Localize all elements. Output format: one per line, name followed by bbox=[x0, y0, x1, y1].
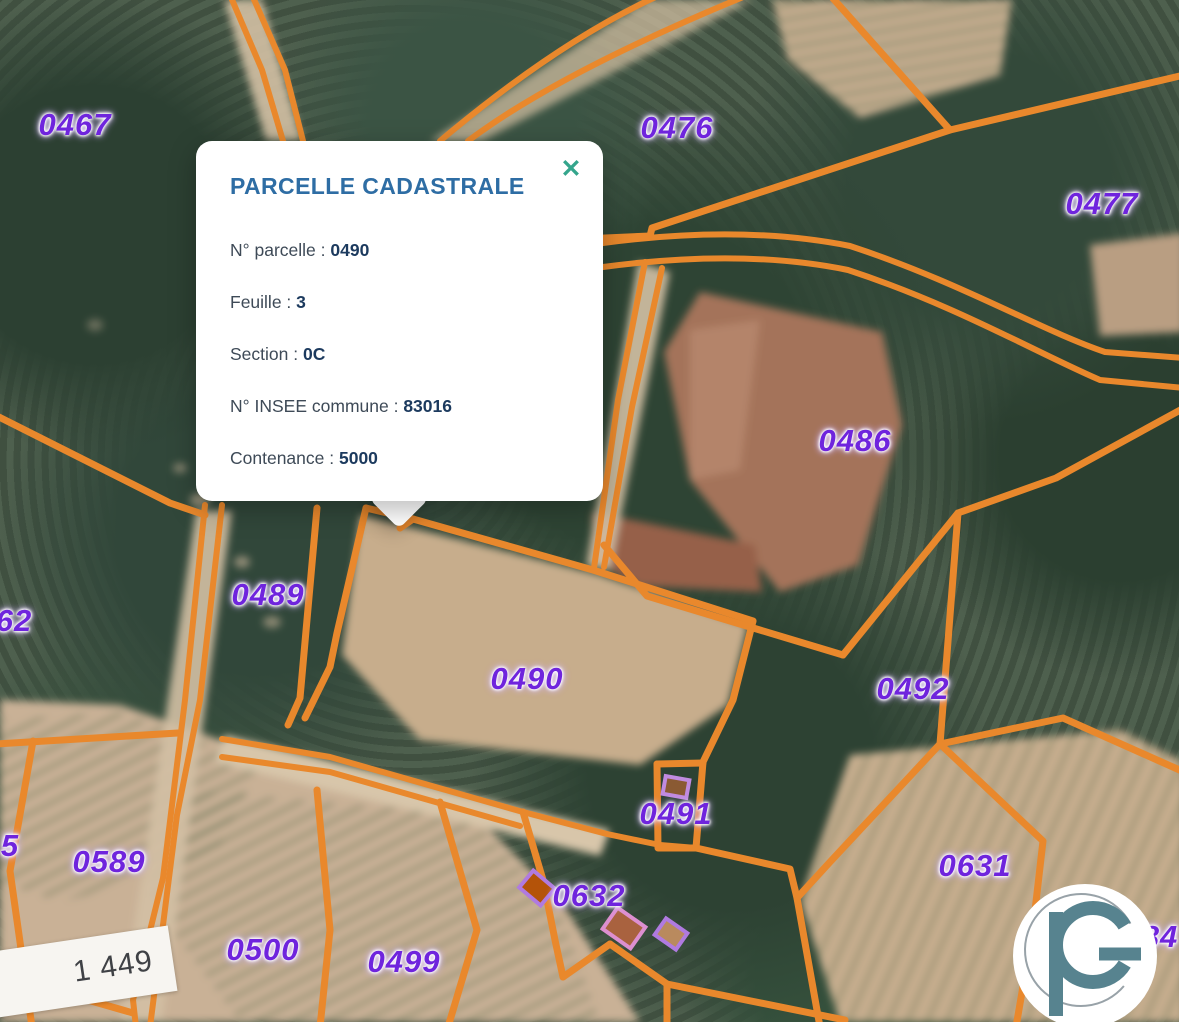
popup-field-label: N° parcelle bbox=[230, 240, 316, 260]
popup-field-separator: : bbox=[316, 240, 331, 260]
popup-field-row: N° parcelle : 0490 bbox=[230, 238, 573, 262]
popup-field-row: Contenance : 5000 bbox=[230, 446, 573, 470]
parcel-label-0500[interactable]: 0500 bbox=[227, 932, 300, 968]
popup-field-separator: : bbox=[389, 396, 404, 416]
popup-field-separator: : bbox=[288, 344, 303, 364]
popup-field-row: Feuille : 3 bbox=[230, 290, 573, 314]
parcel-label-0490[interactable]: 0490 bbox=[491, 661, 564, 697]
popup-field-row: N° INSEE commune : 83016 bbox=[230, 394, 573, 418]
parcel-label-0631[interactable]: 0631 bbox=[939, 848, 1012, 884]
parcel-label-0491[interactable]: 0491 bbox=[640, 796, 713, 832]
popup-field-label: Feuille bbox=[230, 292, 282, 312]
popup-field-value: 5000 bbox=[339, 448, 378, 468]
popup-field-value: 0C bbox=[303, 344, 325, 364]
parcel-label-0632[interactable]: 0632 bbox=[553, 878, 626, 914]
scale-value: 1 449 bbox=[71, 944, 155, 989]
parcel-label-0589[interactable]: 0589 bbox=[73, 844, 146, 880]
parcel-label-0486[interactable]: 0486 bbox=[819, 423, 892, 459]
parcel-label-62[interactable]: 62 bbox=[0, 603, 32, 639]
popup-field-separator: : bbox=[282, 292, 297, 312]
parcel-label-5[interactable]: 5 bbox=[1, 828, 19, 864]
popup-field-label: Section bbox=[230, 344, 288, 364]
parcel-label-0467[interactable]: 0467 bbox=[39, 107, 112, 143]
parcel-label-0477[interactable]: 0477 bbox=[1066, 186, 1139, 222]
parcel-label-0489[interactable]: 0489 bbox=[232, 577, 305, 613]
parcel-label-0476[interactable]: 0476 bbox=[641, 110, 714, 146]
map-canvas[interactable]: 0467 0476 0477 0486 0489 0490 0492 0491 … bbox=[0, 0, 1179, 1022]
popup-field-row: Section : 0C bbox=[230, 342, 573, 366]
brand-logo-icon bbox=[1011, 882, 1159, 1022]
popup-field-separator: : bbox=[324, 448, 339, 468]
parcel-info-popup: ✕ PARCELLE CADASTRALE N° parcelle : 0490… bbox=[196, 141, 603, 501]
popup-title: PARCELLE CADASTRALE bbox=[230, 171, 573, 201]
parcel-label-0492[interactable]: 0492 bbox=[877, 671, 950, 707]
close-icon[interactable]: ✕ bbox=[555, 153, 587, 185]
popup-field-value: 3 bbox=[296, 292, 306, 312]
popup-field-value: 83016 bbox=[403, 396, 452, 416]
popup-field-label: N° INSEE commune bbox=[230, 396, 389, 416]
popup-field-value: 0490 bbox=[330, 240, 369, 260]
parcel-label-0499[interactable]: 0499 bbox=[368, 944, 441, 980]
popup-field-label: Contenance bbox=[230, 448, 324, 468]
